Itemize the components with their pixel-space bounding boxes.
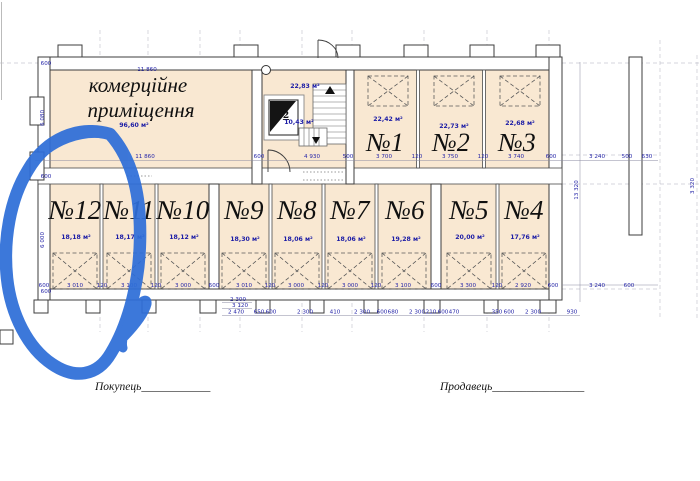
room-area: 17,76 м² bbox=[510, 234, 540, 241]
dim-label: 120 bbox=[492, 283, 503, 289]
room-area: 18,12 м² bbox=[169, 234, 199, 241]
dim-label: 3 000 bbox=[175, 283, 191, 289]
dim-label: 13 320 bbox=[574, 180, 580, 200]
dim-label: 500 bbox=[622, 154, 633, 160]
room-area: 19,28 м² bbox=[391, 236, 421, 243]
dim-label: 120 bbox=[97, 283, 108, 289]
dim-label: 3 010 bbox=[67, 283, 83, 289]
commercial-label-line1: комерційне bbox=[89, 73, 188, 97]
dim-label: 210 bbox=[426, 310, 437, 316]
dim-label: 2 920 bbox=[515, 283, 531, 289]
room-label: №10 bbox=[156, 195, 210, 225]
room-area: 22,73 м² bbox=[439, 123, 469, 130]
dim-label: 2 470 bbox=[228, 310, 244, 316]
dim-label: 120 bbox=[151, 283, 162, 289]
room-label: №8 bbox=[277, 195, 317, 225]
dim-label: 2 300 bbox=[297, 310, 313, 316]
room-label: №1 bbox=[365, 128, 404, 157]
dim-label: 6 000 bbox=[40, 232, 46, 248]
dim-label: 600 bbox=[546, 154, 557, 160]
dim-label: 350 bbox=[492, 310, 503, 316]
dim-label: 120 bbox=[318, 283, 329, 289]
commercial-label-line2: приміщення bbox=[87, 98, 194, 122]
room-label: №2 bbox=[431, 128, 470, 157]
dim-label: 2 300 bbox=[525, 310, 541, 316]
room-label: №4 bbox=[504, 195, 544, 225]
room-area: 22,42 м² bbox=[373, 116, 403, 123]
room-label: №5 bbox=[449, 195, 489, 225]
room-area: 18,30 м² bbox=[230, 236, 260, 243]
dim-label: 470 bbox=[449, 310, 460, 316]
room-label: №12 bbox=[48, 195, 101, 225]
dim-label: 120 bbox=[265, 283, 276, 289]
dim-label: 600 bbox=[504, 310, 515, 316]
dim-label: 600 bbox=[438, 310, 449, 316]
dim-label: 3 300 bbox=[460, 283, 476, 289]
signature-block: Покупець____________ Продавець__________… bbox=[94, 381, 585, 393]
room-label: №7 bbox=[330, 195, 371, 225]
dim-label: 3 320 bbox=[690, 178, 696, 194]
dim-label: 3 010 bbox=[236, 283, 252, 289]
dim-label: 600 bbox=[431, 283, 442, 289]
stairwell-area: 22,83 м² bbox=[290, 83, 320, 90]
room-label: №9 bbox=[224, 195, 264, 225]
dim-label: 630 bbox=[642, 154, 653, 160]
dim-label: 120 bbox=[371, 283, 382, 289]
dim-label: 410 bbox=[330, 310, 341, 316]
seller-signature-line: Продавець________________ bbox=[439, 381, 585, 393]
room-area: 22,68 м² bbox=[505, 120, 535, 127]
dim-label: 650 bbox=[254, 310, 265, 316]
room-area: 18,06 м² bbox=[283, 236, 313, 243]
dim-label: 600 bbox=[41, 174, 52, 180]
dim-label: 4 930 bbox=[304, 154, 320, 160]
dim-label: 3 120 bbox=[232, 303, 248, 309]
dim-label: 680 bbox=[388, 310, 399, 316]
dim-label: 930 bbox=[567, 310, 578, 316]
dim-label: 11 860 bbox=[135, 154, 155, 160]
buyer-signature-line: Покупець____________ bbox=[94, 381, 211, 393]
dim-label: 3 100 bbox=[395, 283, 411, 289]
dim-label: 500 bbox=[343, 154, 354, 160]
room-area: 18,06 м² bbox=[336, 236, 366, 243]
floor-plan-drawing: 2 bbox=[0, 0, 700, 481]
dim-label: 2 300 bbox=[409, 310, 425, 316]
dim-label: 6 080 bbox=[40, 110, 46, 126]
dim-label: 600 bbox=[266, 310, 277, 316]
room-label: №6 bbox=[385, 195, 425, 225]
dim-label: 2 300 bbox=[354, 310, 370, 316]
dim-label: 3 240 bbox=[589, 154, 605, 160]
dim-label: 3 000 bbox=[342, 283, 358, 289]
room-area: 20,00 м² bbox=[455, 234, 485, 241]
room-area: 18,18 м² bbox=[61, 234, 91, 241]
room-label: №3 bbox=[497, 128, 536, 157]
dim-label: 600 bbox=[254, 154, 265, 160]
room-label: №11 bbox=[103, 195, 154, 225]
dim-label: 600 bbox=[624, 283, 635, 289]
column-circle bbox=[262, 66, 271, 75]
dim-label: 600 bbox=[41, 289, 52, 295]
dim-label: 600 bbox=[41, 61, 52, 67]
commercial-area: 96,60 м² bbox=[119, 122, 149, 129]
dim-label: 600 bbox=[209, 283, 220, 289]
dim-label: 3 000 bbox=[288, 283, 304, 289]
dim-label: 3 240 bbox=[589, 283, 605, 289]
dim-label: 120 bbox=[478, 154, 489, 160]
dim-label: 600 bbox=[377, 310, 388, 316]
dim-label: 600 bbox=[548, 283, 559, 289]
dim-label: 120 bbox=[412, 154, 423, 160]
stairs-area: 10,43 м² bbox=[284, 119, 314, 126]
elevator: 2 bbox=[264, 95, 304, 140]
